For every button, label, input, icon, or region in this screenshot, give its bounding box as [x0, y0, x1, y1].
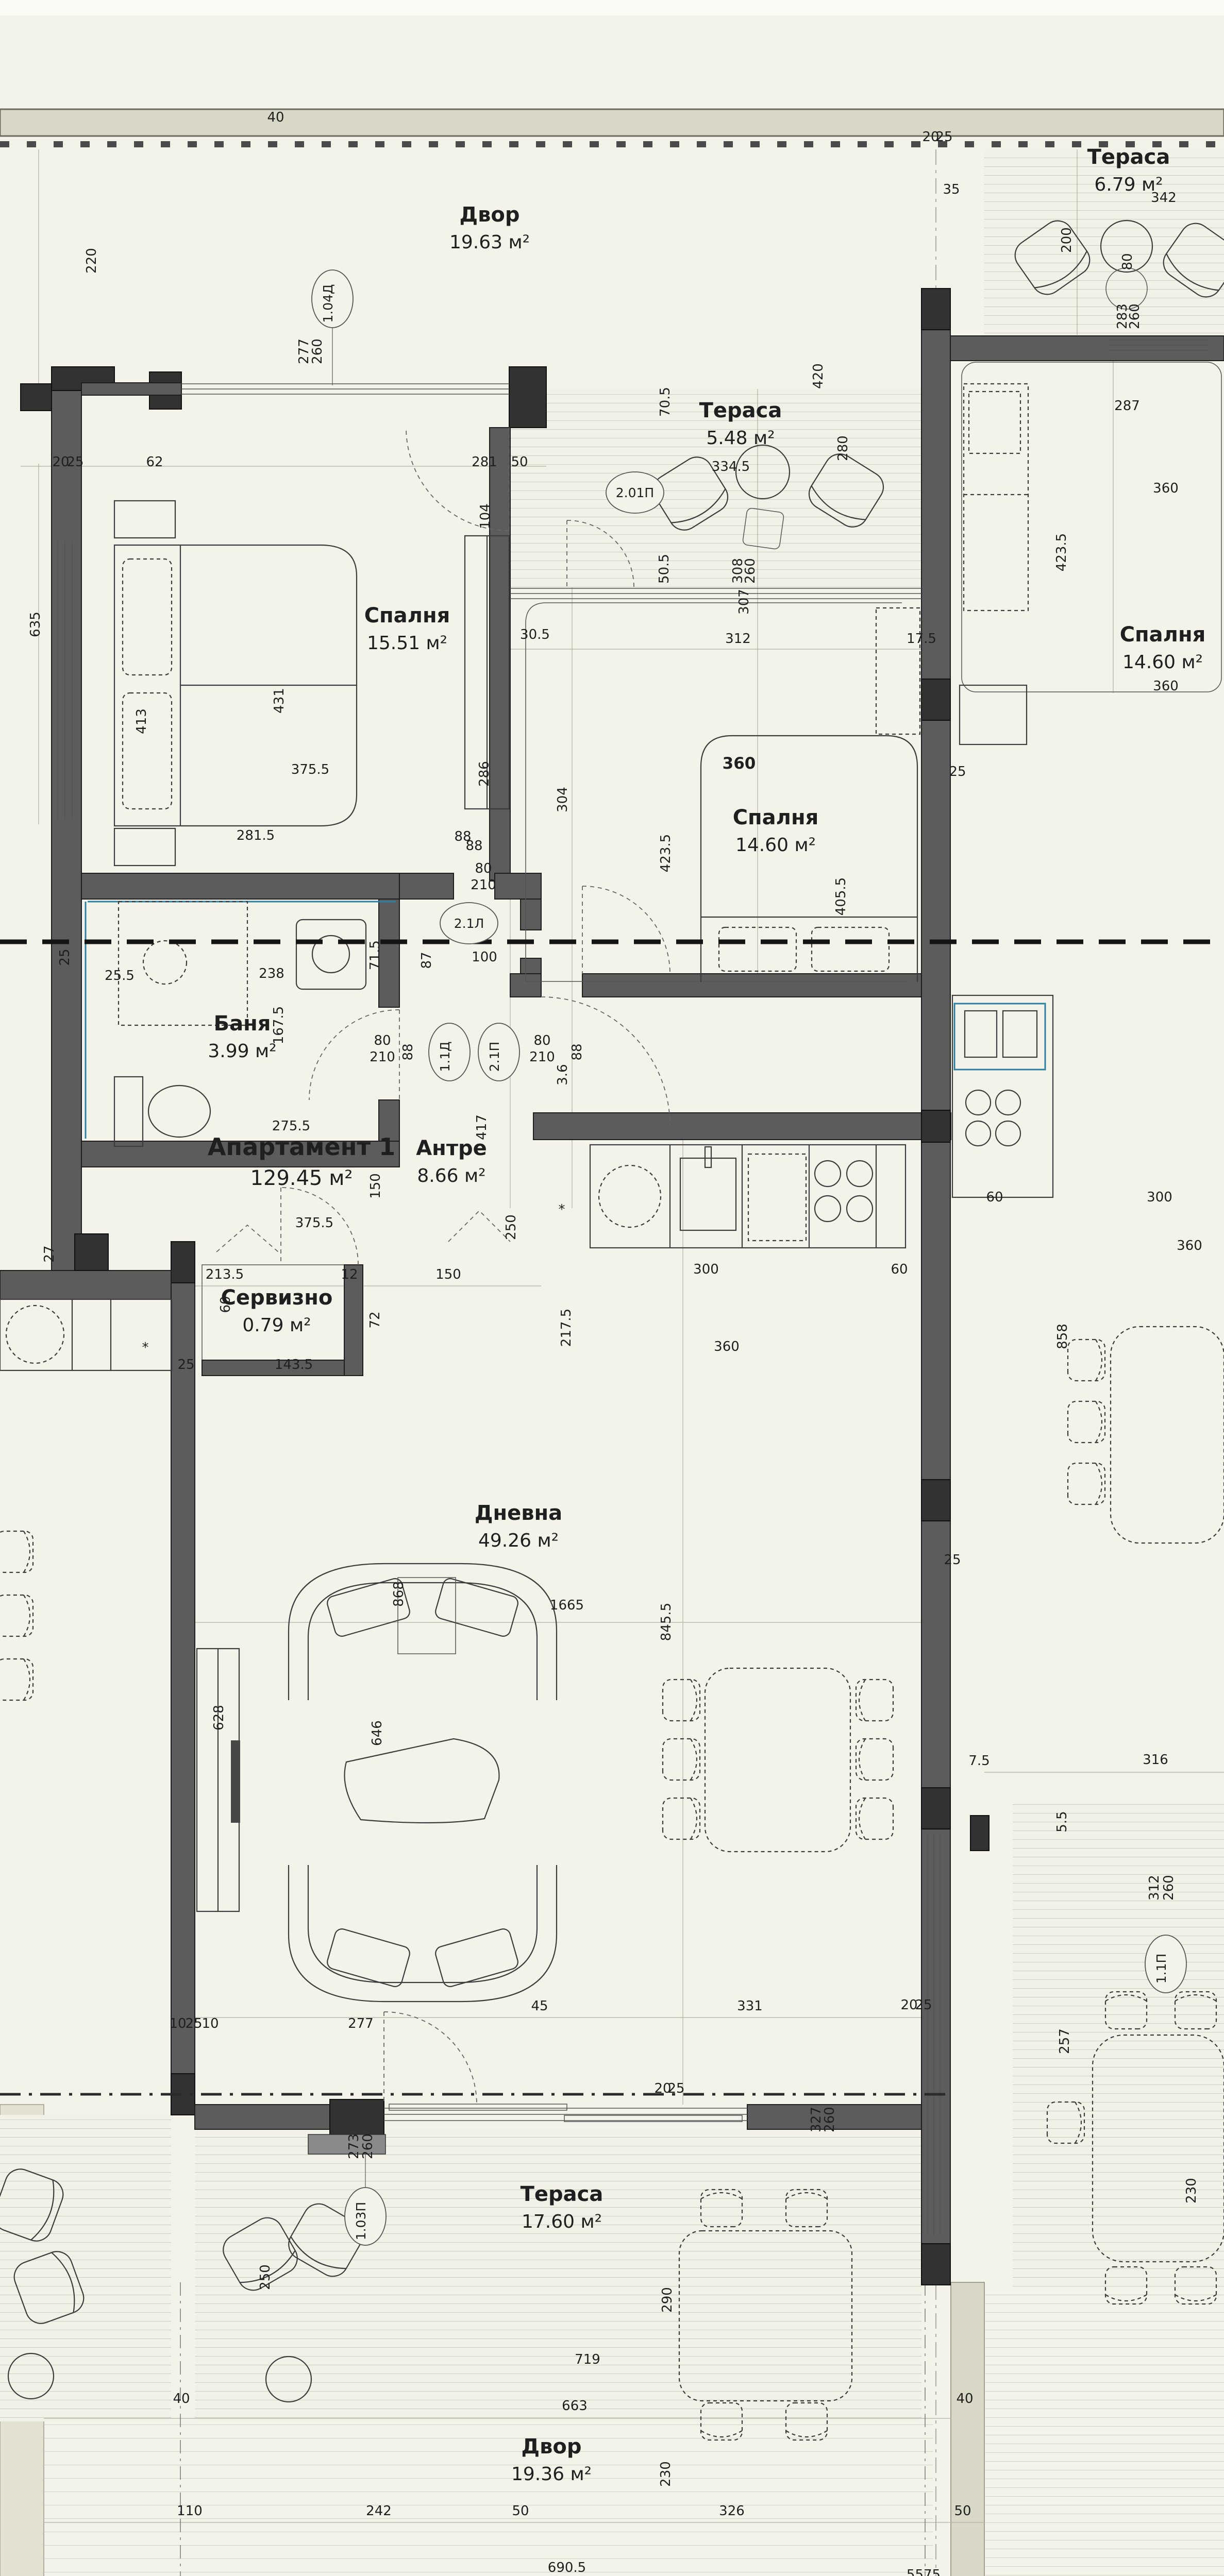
apartment-area: 129.45 м²: [250, 1166, 353, 1190]
room-area: 3.99 м²: [208, 1041, 276, 1062]
west-outer-wall: [52, 384, 81, 1272]
dimension: 260: [310, 338, 325, 364]
dimension: 845.5: [659, 1603, 674, 1641]
dimension: 80: [1120, 253, 1135, 270]
dimension: 307: [736, 589, 752, 615]
dimension: 300: [693, 1262, 719, 1277]
door-bubble-label: 2.1П: [487, 1042, 502, 1072]
south-column: [330, 2099, 384, 2134]
dimension: 80: [533, 1033, 550, 1048]
dimension: 646: [370, 1720, 385, 1746]
dimension: 417: [474, 1114, 490, 1140]
dimension: 25.5: [105, 968, 135, 984]
dimension: 50: [512, 2503, 529, 2519]
dimension: 80: [374, 1033, 391, 1048]
neighbor-terrace-deck: [1013, 1803, 1224, 2287]
floor-plan-drawing: Двор19.63 м²Тераса6.79 м²Тераса5.48 м²Сп…: [0, 0, 1224, 2576]
room-name: Спалня: [364, 604, 450, 628]
dimension: 342: [1151, 190, 1177, 206]
room-area: 8.66 м²: [417, 1165, 485, 1187]
room-area: 14.60 м²: [735, 835, 816, 856]
dimension: 71.5: [367, 940, 383, 970]
dimension: 88: [465, 838, 482, 854]
dimension: 220: [84, 248, 99, 274]
dimension: 45: [531, 1998, 548, 2014]
dimension: 260: [360, 2133, 376, 2159]
dimension: 413: [134, 708, 149, 734]
dimension: 150: [368, 1173, 383, 1199]
room-area: 0.79 м²: [242, 1315, 311, 1336]
dimension: 150: [435, 1267, 461, 1282]
dimension: 690.5: [548, 2560, 586, 2575]
dimension: 635: [28, 612, 43, 637]
dimension: 375.5: [295, 1215, 333, 1231]
room-name: Баня: [214, 1012, 271, 1036]
room-name: Тераса: [699, 399, 782, 422]
dimension: 25: [915, 1997, 932, 2013]
dimension: 423.5: [1054, 533, 1069, 571]
dimension: 277: [348, 2016, 374, 2031]
dimension: 213.5: [206, 1267, 244, 1282]
door-bubble-label: 1.03П: [354, 2202, 368, 2240]
kitchen-north-wall: [533, 1113, 951, 1140]
dimension: 40: [173, 2391, 190, 2406]
dimension: 50: [954, 2503, 971, 2519]
dimension: 331: [737, 1998, 763, 2014]
dimension: 25: [667, 2081, 684, 2096]
dimension: 25: [185, 2016, 202, 2031]
dimension: 210: [471, 877, 496, 893]
dimension: 360: [1153, 481, 1179, 496]
dimension: 230: [1184, 2178, 1199, 2204]
top-beige-band: [0, 109, 1224, 136]
dimension: 858: [1055, 1324, 1070, 1349]
dimension: 281.5: [237, 828, 275, 843]
room-name: Двор: [521, 2435, 581, 2459]
dimension: 10: [169, 2016, 186, 2031]
dimension: 5575: [907, 2567, 941, 2576]
dimension: 360: [1177, 1238, 1202, 1253]
dimension: 40: [267, 110, 284, 125]
dimension: 17.5: [907, 631, 936, 647]
bedroom2-south-wall: [582, 974, 921, 997]
dimension: 100: [472, 950, 497, 965]
room-area: 19.63 м²: [449, 232, 530, 253]
dimension: 260: [743, 558, 758, 584]
floor-plan-sheet: Двор19.63 м²Тераса6.79 м²Тераса5.48 м²Сп…: [0, 0, 1224, 2576]
south-wall-west: [195, 2105, 330, 2129]
room-name: Сервизно: [221, 1286, 333, 1310]
room-area: 49.26 м²: [478, 1530, 559, 1551]
party-wall-west: [171, 1242, 195, 2115]
dimension: 260: [822, 2107, 837, 2132]
dimension: 5.5: [1054, 1811, 1070, 1832]
dimension: 87: [419, 952, 434, 969]
dimension: 1665: [550, 1598, 584, 1613]
dimension: 423.5: [658, 834, 674, 872]
room-area: 14.60 м²: [1122, 652, 1203, 673]
dimension: 25: [944, 1552, 961, 1568]
dimension: 50: [511, 454, 528, 470]
dimension: 250: [504, 1214, 519, 1240]
dimension: 50.5: [657, 554, 672, 584]
dimension: 25: [57, 948, 73, 965]
dimension: 25: [66, 454, 83, 470]
dimension: 868: [391, 1581, 407, 1607]
apartment-title: Апартамент 1: [208, 1133, 395, 1161]
dimension: 104: [478, 503, 493, 529]
dimension: 143.5: [275, 1357, 313, 1372]
dimension: 7.5: [968, 1753, 990, 1769]
dimension: 72: [367, 1311, 383, 1328]
room-area: 17.60 м²: [522, 2211, 602, 2232]
terrace-1760-deck: [195, 2129, 921, 2421]
dimension: 70.5: [658, 387, 673, 417]
dimension: 238: [259, 966, 284, 981]
dimension: 230: [658, 2461, 674, 2487]
dimension: 431: [272, 688, 287, 714]
room-name: Двор: [459, 203, 519, 227]
dimension: 35: [943, 182, 960, 197]
dimension: 12: [341, 1267, 358, 1282]
dimension: 250: [258, 2264, 273, 2290]
door-bubble-label: 2.1Л: [454, 916, 484, 931]
dimension: 260: [1127, 303, 1143, 329]
dimension: 273: [346, 2133, 362, 2159]
dimension: 260: [1161, 1875, 1177, 1901]
room-area: 5.48 м²: [706, 428, 775, 449]
dimension: 719: [575, 2352, 600, 2367]
dimension: 60: [891, 1262, 908, 1277]
dimension: 304: [555, 787, 571, 812]
dimension: 286: [477, 761, 492, 787]
dimension: 312: [725, 631, 751, 647]
room-name: Дневна: [475, 1501, 562, 1525]
door-bubble-label: 1.1Д: [438, 1041, 452, 1072]
dimension: 217.5: [559, 1309, 574, 1347]
room-area: 15.51 м²: [367, 633, 447, 654]
dimension: *: [142, 1340, 149, 1355]
dimension: 80: [475, 861, 492, 876]
dimension: 257: [1057, 2028, 1072, 2054]
yard-bottom-deck: [44, 2421, 933, 2576]
dimension: 663: [562, 2398, 588, 2414]
dimension: 200: [1059, 227, 1075, 253]
dimension: 25: [177, 1357, 194, 1372]
dimension: 210: [370, 1049, 395, 1065]
dimension: 360: [714, 1339, 740, 1354]
room-name: Тераса: [1087, 145, 1170, 169]
dimension: 167.5: [271, 1006, 287, 1044]
room-name: Тераса: [521, 2182, 603, 2206]
dimension: 40: [956, 2391, 973, 2406]
door-bubble-label: 1.1П: [1154, 1954, 1169, 1984]
dimension: *: [559, 1202, 565, 1217]
door-bubble-label: 2.01П: [616, 485, 654, 500]
right-beige-strip: [951, 2282, 984, 2576]
dimension: 275.5: [272, 1118, 310, 1134]
dimension: 88: [569, 1043, 585, 1060]
tv: [231, 1740, 240, 1823]
dimension: 25: [935, 129, 952, 145]
room-name: Спалня: [733, 806, 819, 829]
right-apt-north-wall: [950, 336, 1224, 361]
dimension: 62: [146, 454, 163, 470]
bathroom-north-wall: [81, 873, 399, 899]
dimension: 290: [660, 2287, 675, 2313]
dimension: 360: [1153, 679, 1179, 694]
dimension: 334.5: [712, 459, 750, 474]
bedroom1-east-wall: [490, 428, 510, 881]
dimension: 3.6: [555, 1064, 571, 1085]
dimension: 326: [719, 2503, 745, 2519]
dimension: 280: [835, 435, 851, 461]
room-area: 19.36 м²: [511, 2464, 592, 2485]
dimension: 25: [949, 764, 966, 779]
dimension: 60: [218, 1296, 233, 1313]
dimension: 27: [42, 1245, 57, 1262]
dimension: 281: [472, 454, 497, 470]
dimension: 10: [202, 2016, 219, 2031]
dimension: 242: [366, 2503, 392, 2519]
dimension: 375.5: [291, 762, 329, 777]
dimension: 420: [811, 363, 826, 389]
dimension: 210: [529, 1049, 555, 1065]
dimension: 88: [400, 1043, 416, 1060]
dimension: 300: [1147, 1190, 1172, 1205]
dimension: 287: [1114, 398, 1140, 414]
dimension: 60: [986, 1190, 1003, 1205]
dimension: 628: [211, 1705, 227, 1731]
door-bubble-label: 1.04Д: [321, 284, 336, 323]
dimension: 316: [1143, 1752, 1168, 1768]
dimension: 312: [1147, 1875, 1162, 1901]
dimension: 110: [177, 2503, 203, 2519]
room-name: Спалня: [1120, 623, 1206, 647]
spine-wall: [921, 289, 950, 2285]
dimension: 360: [723, 754, 756, 773]
dimension: 30.5: [520, 627, 550, 642]
dimension: 405.5: [833, 877, 849, 916]
